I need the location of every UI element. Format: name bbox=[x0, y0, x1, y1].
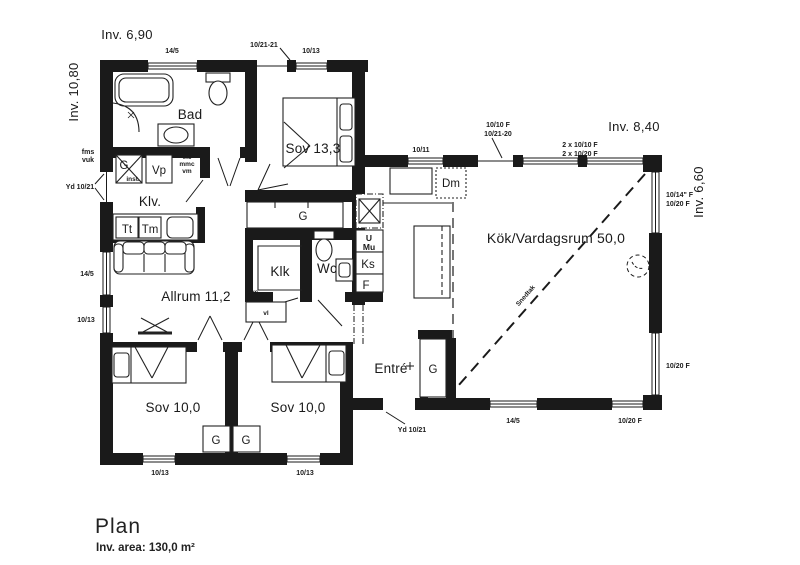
window-kok-2x-b bbox=[587, 158, 643, 164]
room-klv: Klv. bbox=[139, 194, 161, 209]
dim-top: Inv. 6,90 bbox=[101, 27, 153, 42]
tag-vuk: vuk bbox=[82, 157, 94, 164]
tag-south-win2: 10/20 F bbox=[618, 418, 642, 425]
bad-sink bbox=[158, 124, 194, 146]
tag-kok-win-top: 10/11 bbox=[412, 147, 429, 154]
window-sov-south-a bbox=[143, 456, 175, 462]
room-allrum: Allrum 11,2 bbox=[161, 289, 230, 304]
desk bbox=[138, 318, 172, 333]
bed-sov10b bbox=[272, 345, 346, 382]
wc-toilet bbox=[314, 231, 334, 261]
tag-south-win1: 14/5 bbox=[506, 418, 520, 425]
window-south-14-5 bbox=[490, 401, 537, 407]
label-dm: Dm bbox=[442, 178, 460, 190]
label-vm: vm bbox=[182, 168, 192, 175]
dim-left: Inv. 10,80 bbox=[66, 62, 81, 121]
label-f: F bbox=[362, 280, 369, 292]
label-vp: Vp bbox=[152, 165, 166, 177]
room-kok: Kök/Vardagsrum 50,0 bbox=[487, 230, 625, 246]
wc-sink bbox=[336, 259, 353, 281]
window-top-10-13 bbox=[296, 63, 327, 69]
tag-south-sov-a: 10/13 bbox=[151, 470, 169, 477]
window-kok-2x-a bbox=[523, 158, 578, 164]
floor-drain bbox=[128, 112, 134, 118]
tag-top-door: 10/21-21 bbox=[250, 42, 278, 49]
fireplace-symbol bbox=[627, 255, 649, 277]
label-g-sov-a: G bbox=[212, 435, 221, 447]
label-g-sov-b: G bbox=[242, 435, 251, 447]
window-south-10-20 bbox=[612, 401, 643, 407]
window-left-14-5 bbox=[103, 252, 110, 295]
label-ks: Ks bbox=[361, 259, 375, 271]
tag-right-win1a: 10/14" F bbox=[666, 192, 694, 199]
label-g-inst: G bbox=[120, 160, 129, 172]
label-gvc: gvc bbox=[247, 289, 259, 296]
label-vl: vl bbox=[263, 310, 269, 317]
hall-wardrobe bbox=[247, 202, 343, 228]
tag-top-win2: 10/13 bbox=[302, 48, 320, 55]
label-g-entre: G bbox=[429, 364, 438, 376]
tag-right-win2: 10/20 F bbox=[666, 363, 690, 370]
shower-corner bbox=[113, 103, 139, 132]
kitchen-sink bbox=[356, 194, 383, 228]
bathtub bbox=[115, 74, 173, 106]
floor-plan-drawing: Inv. 6,90 Inv. 10,80 Inv. 8,40 Inv. 6,60… bbox=[0, 0, 800, 565]
dim-kitchen: Inv. 8,40 bbox=[608, 119, 660, 134]
tag-south-sov-b: 10/13 bbox=[296, 470, 314, 477]
snedtak-lines bbox=[443, 170, 649, 403]
window-kok-10-11 bbox=[408, 158, 443, 164]
label-mmc: mmc bbox=[179, 161, 195, 168]
bed-sov10a bbox=[112, 347, 186, 383]
tag-front-door: Yd 10/21 bbox=[398, 427, 427, 434]
tag-kok-2x-1: 2 x 10/10 F bbox=[562, 142, 598, 149]
plan-title: Plan bbox=[95, 515, 141, 538]
tag-fms: fms bbox=[82, 149, 95, 156]
room-bad: Bad bbox=[178, 107, 203, 122]
tag-kok-door2: 10/21-20 bbox=[484, 131, 512, 138]
label-tm: Tm bbox=[142, 224, 159, 236]
window-top-14-5 bbox=[148, 63, 197, 69]
plan-area: Inv. area: 130,0 m² bbox=[96, 542, 195, 554]
bad-toilet bbox=[206, 73, 230, 105]
room-klk: Klk bbox=[270, 264, 289, 279]
window-sov-south-b bbox=[287, 456, 320, 462]
kitchen-island bbox=[414, 226, 450, 298]
label-snedtak: Snedtak bbox=[515, 284, 537, 308]
room-sov13: Sov 13,3 bbox=[286, 141, 341, 156]
label-tt: Tt bbox=[122, 224, 133, 236]
tag-left-win2: 10/13 bbox=[77, 317, 95, 324]
sofa bbox=[114, 241, 194, 274]
label-g-hall: G bbox=[299, 211, 308, 223]
room-sov10b: Sov 10,0 bbox=[271, 400, 326, 415]
label-inst: inst. bbox=[126, 176, 140, 183]
label-elc: elc bbox=[182, 154, 191, 161]
tag-left-door: Yd 10/21 bbox=[66, 184, 95, 191]
tag-kok-door1: 10/10 F bbox=[486, 122, 510, 129]
label-mu: Mu bbox=[363, 242, 375, 252]
room-wc: Wc bbox=[317, 261, 337, 276]
dim-right: Inv. 6,60 bbox=[691, 166, 706, 218]
tag-right-win1b: 10/20 F bbox=[666, 201, 690, 208]
tag-left-win1: 14/5 bbox=[80, 271, 94, 278]
furniture bbox=[112, 73, 466, 452]
bed-sov13 bbox=[283, 98, 355, 168]
window-right-10-14 bbox=[652, 172, 659, 233]
room-sov10a: Sov 10,0 bbox=[146, 400, 201, 415]
room-entre: Entré bbox=[374, 361, 407, 376]
tag-top-win1: 14/5 bbox=[165, 48, 179, 55]
window-left-10-13 bbox=[103, 307, 110, 333]
tag-kok-2x-2: 2 x 10/20 F bbox=[562, 151, 598, 158]
window-right-10-20 bbox=[652, 333, 659, 395]
floor-plan-page: Inv. 6,90 Inv. 10,80 Inv. 8,40 Inv. 6,60… bbox=[0, 0, 800, 565]
